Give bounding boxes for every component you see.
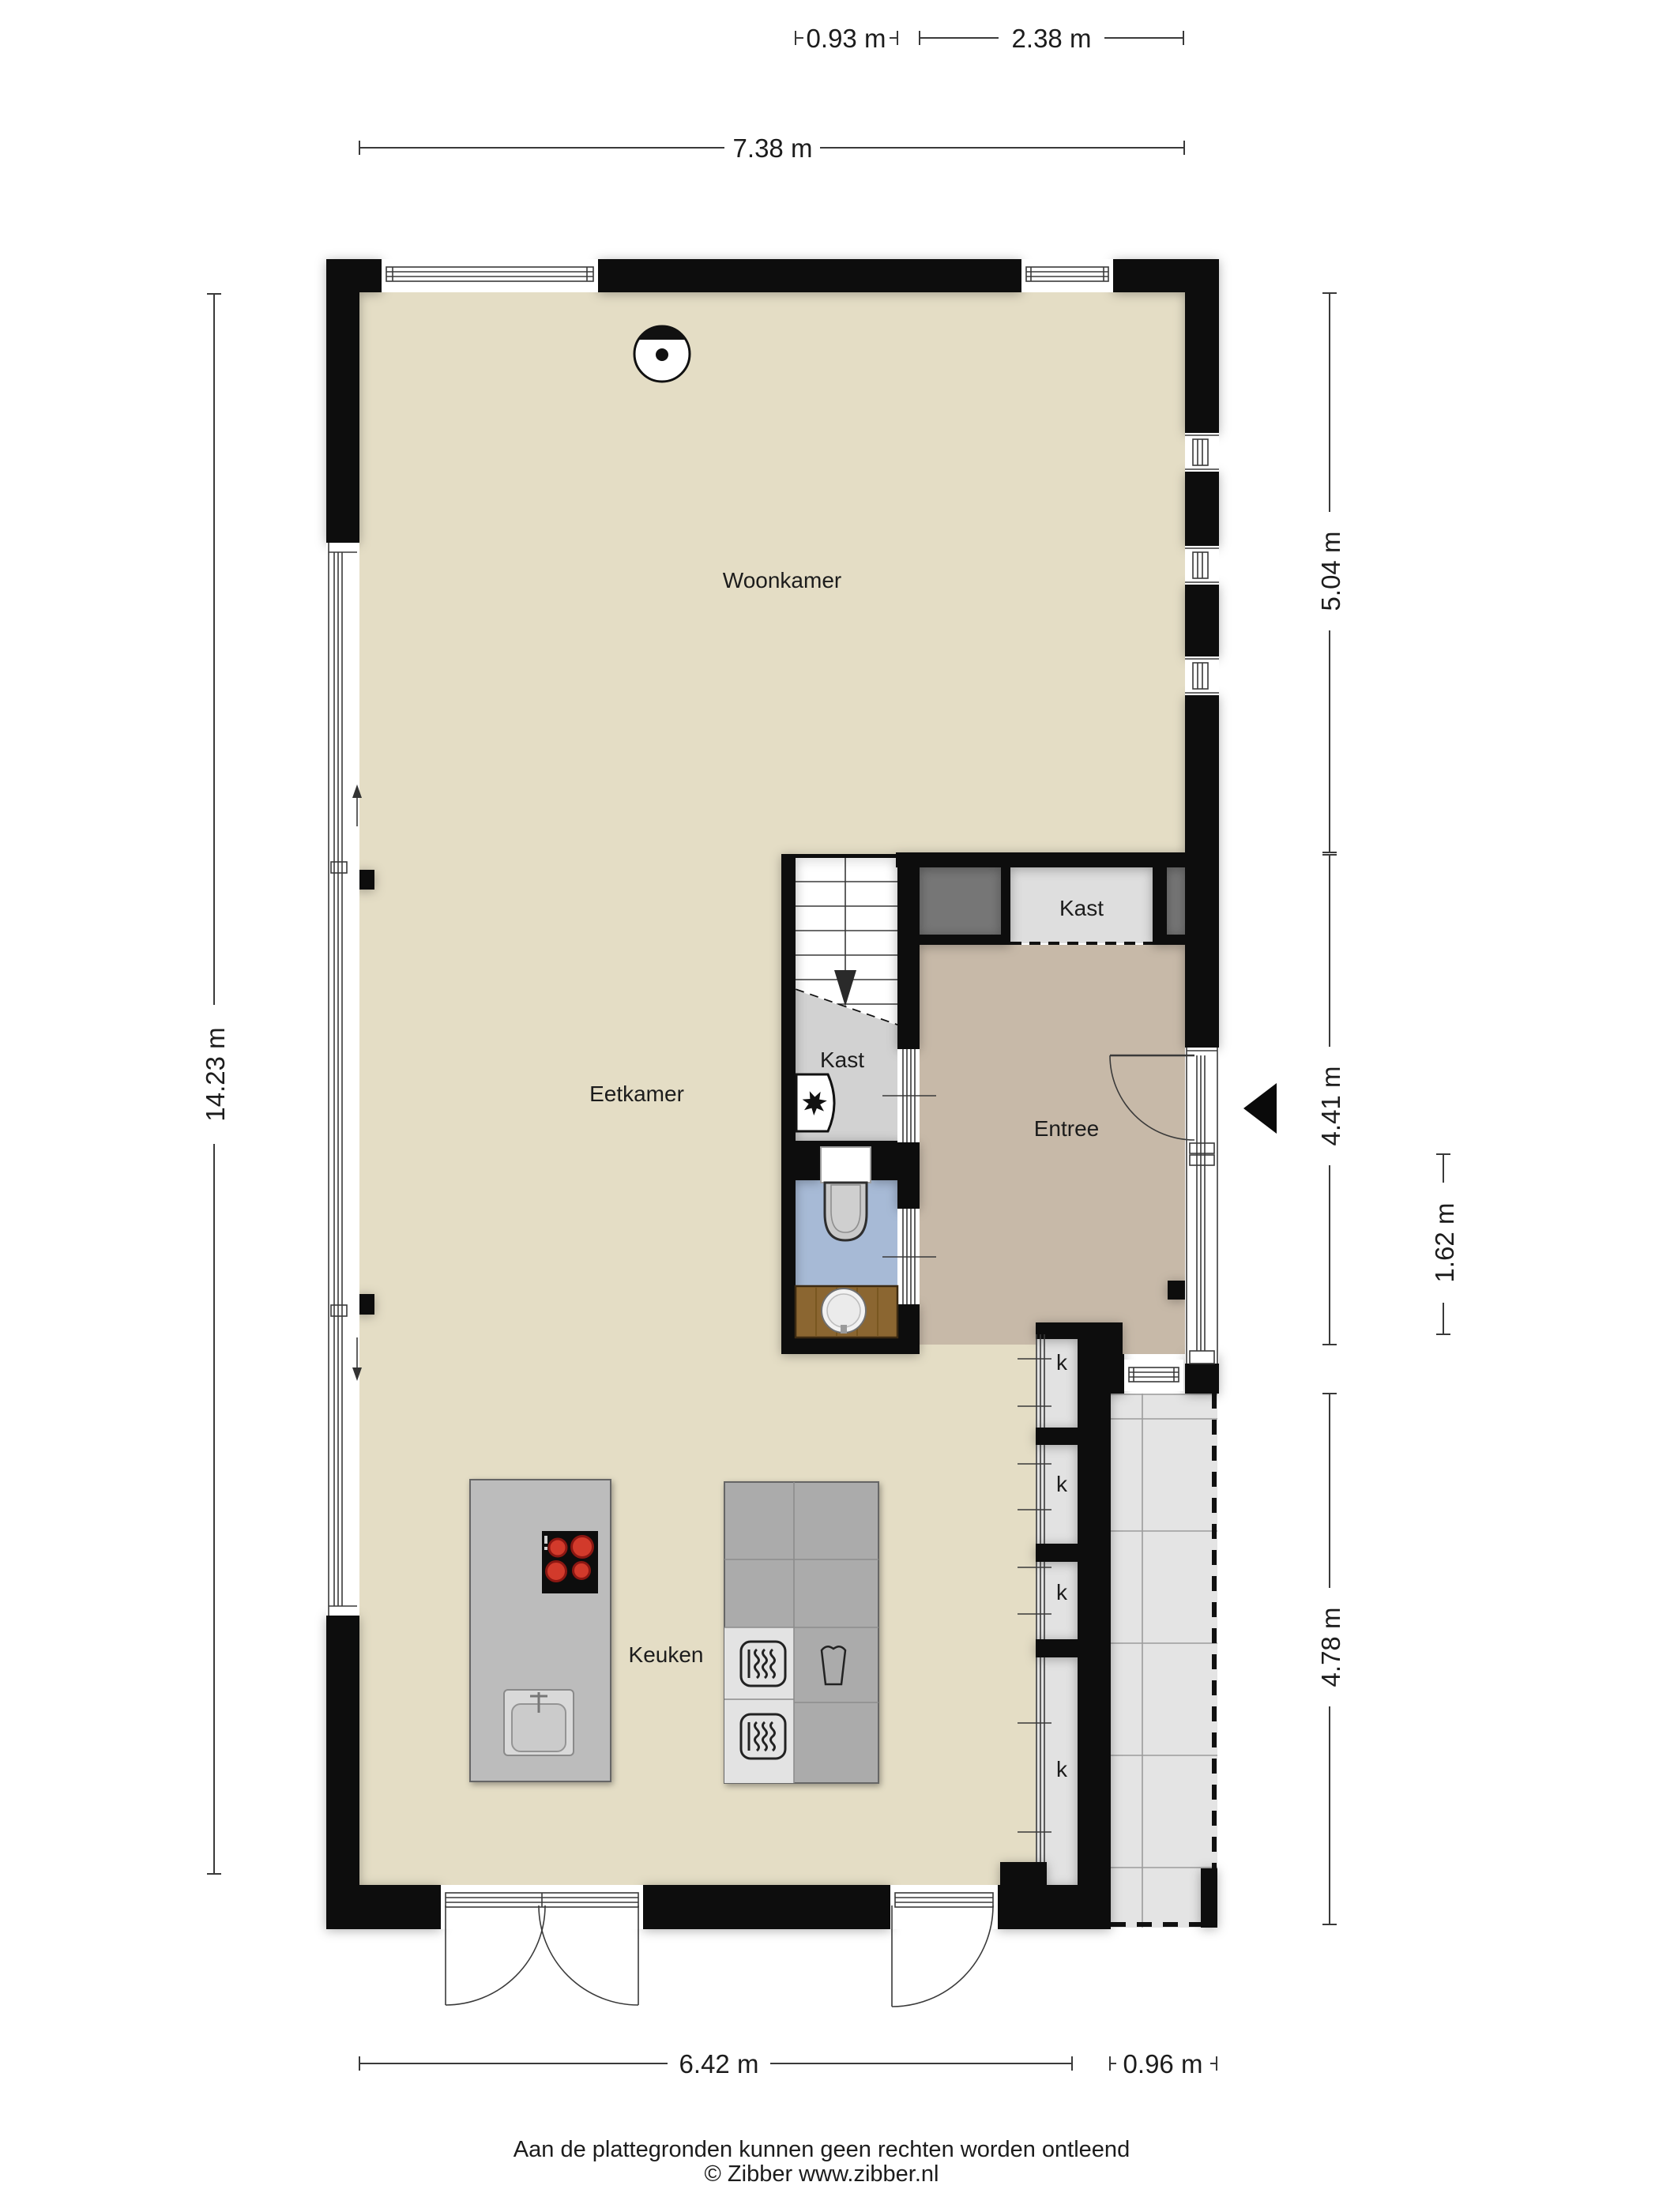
svg-text:Entree: Entree — [1034, 1116, 1100, 1141]
svg-text:k: k — [1056, 1350, 1068, 1375]
svg-text:14.23 m: 14.23 m — [201, 1027, 230, 1121]
svg-text:Woonkamer: Woonkamer — [723, 568, 841, 592]
svg-text:2.38 m: 2.38 m — [1012, 24, 1092, 53]
svg-text:Keuken: Keuken — [629, 1642, 704, 1667]
svg-text:7.38 m: 7.38 m — [733, 134, 813, 163]
svg-text:Kast: Kast — [1059, 896, 1104, 920]
svg-text:k: k — [1056, 1757, 1068, 1781]
svg-text:4.41 m: 4.41 m — [1316, 1066, 1345, 1146]
svg-text:0.96 m: 0.96 m — [1123, 2049, 1203, 2078]
svg-text:4.78 m: 4.78 m — [1316, 1608, 1345, 1687]
svg-text:© Zibber www.zibber.nl: © Zibber www.zibber.nl — [705, 2161, 939, 2187]
svg-text:0.93 m: 0.93 m — [807, 24, 886, 53]
svg-text:k: k — [1056, 1472, 1068, 1496]
svg-text:Aan de plattegronden kunnen ge: Aan de plattegronden kunnen geen rechten… — [513, 2137, 1130, 2162]
svg-text:5.04 m: 5.04 m — [1316, 532, 1345, 611]
svg-text:1.62 m: 1.62 m — [1430, 1203, 1459, 1283]
svg-text:Eetkamer: Eetkamer — [589, 1082, 684, 1106]
svg-text:Kast: Kast — [820, 1048, 864, 1072]
svg-text:6.42 m: 6.42 m — [679, 2049, 759, 2078]
svg-text:k: k — [1056, 1580, 1068, 1604]
